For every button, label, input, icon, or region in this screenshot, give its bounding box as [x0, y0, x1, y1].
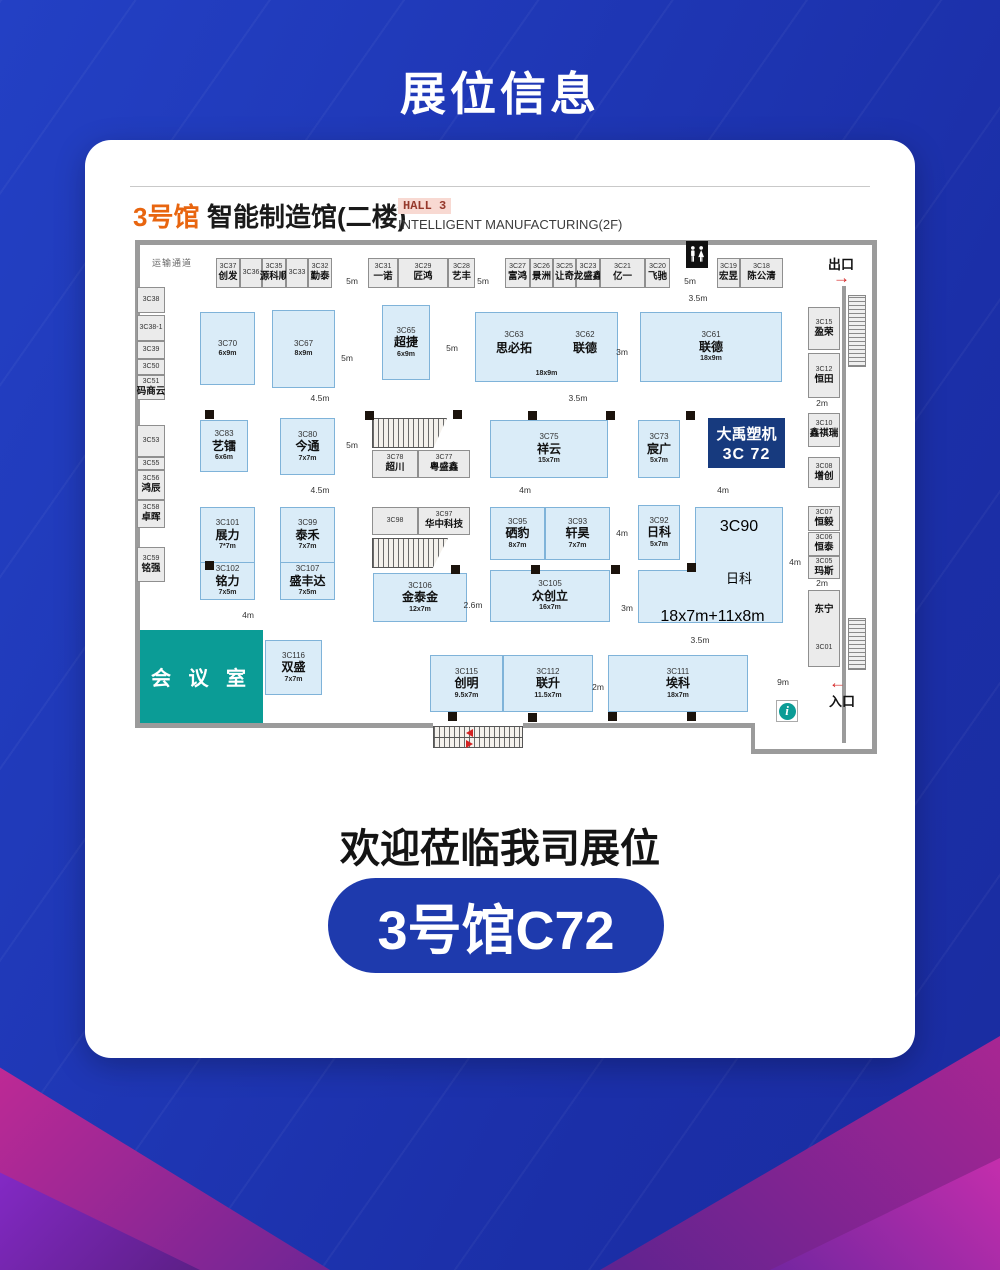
- booth-3c65: 3C65超捷6x9m: [382, 305, 430, 380]
- pillar: [448, 712, 457, 721]
- booth-dims: 7x7m: [569, 542, 587, 550]
- booth-code: 3C78: [387, 454, 404, 462]
- booth-code: 3C32: [312, 263, 329, 271]
- booth-code: 3C55: [143, 460, 160, 468]
- booth-code: 3C51: [143, 378, 160, 386]
- booth-3c50: 3C50: [137, 359, 165, 375]
- measure-label: 4m: [789, 557, 801, 567]
- booth-code: 3C31: [375, 263, 392, 271]
- booth-code: 3C107: [296, 565, 320, 574]
- booth-name: 恒泰: [814, 543, 833, 553]
- pillar: [205, 410, 214, 419]
- booth-3c59: 3C59铭强: [137, 547, 165, 582]
- booth-3c55: 3C55: [137, 457, 165, 470]
- booth-3c15: 3C15盈荣: [808, 307, 840, 350]
- booth-code: 3C56: [143, 475, 160, 483]
- booth-name: 一诺: [373, 272, 392, 282]
- booth-code: 3C77: [436, 454, 453, 462]
- booth-name: 盛丰达: [289, 575, 325, 588]
- measure-label: 3m: [621, 603, 633, 613]
- booth-name: 恒毅: [814, 518, 833, 528]
- stairs-icon: [372, 418, 447, 448]
- booth-dims: 5x7m: [650, 457, 668, 465]
- pillar: [686, 411, 695, 420]
- stairs-icon: [372, 538, 448, 568]
- booth-code: 3C33: [289, 269, 306, 277]
- measure-label: 5m: [684, 276, 696, 286]
- booth-3c19: 3C19宏昱: [717, 258, 740, 288]
- booth-3c53: 3C53: [137, 425, 165, 457]
- booth-name: 祥云: [537, 443, 561, 456]
- booth-name: 轩昊: [565, 527, 589, 540]
- booth-name: 东宁: [814, 605, 833, 615]
- booth-3c27: 3C27富鸿: [505, 258, 530, 288]
- booth-code: 3C105: [538, 580, 562, 589]
- booth-name: 泰禾: [295, 529, 319, 542]
- booth-cta-text: 3号馆C72: [377, 886, 614, 965]
- header-divider: [130, 186, 870, 187]
- booth-code: 3C08: [816, 463, 833, 471]
- measure-label: 5m: [346, 276, 358, 286]
- booth-name: 超捷: [394, 336, 418, 349]
- booth-3c77: 3C77粤盛鑫: [418, 450, 470, 478]
- booth-code: 3C53: [143, 437, 160, 445]
- booth-dims: 7x7m: [299, 543, 317, 551]
- booth-name: 玛斯: [814, 567, 833, 577]
- entrance-arrow-icon: ←: [829, 674, 846, 691]
- booth-dims: 15x7m: [538, 457, 560, 465]
- booth-name: 亿一: [613, 272, 632, 282]
- booth-name: 双盛: [281, 661, 305, 674]
- booth-3c35: 3C35源科顺: [262, 258, 286, 288]
- pillar: [531, 565, 540, 574]
- booth-3c51: 3C51码商云: [137, 375, 165, 400]
- booth-name: 增创: [814, 472, 833, 482]
- booth-3c12: 3C12恒田: [808, 353, 840, 398]
- booth-3c105: 3C105众创立16x7m: [490, 570, 610, 622]
- booth-code: 3C102: [216, 565, 240, 574]
- booth-dims: 7*7m: [219, 543, 236, 551]
- measure-label: 3m: [616, 347, 628, 357]
- booth-dims: 7x7m: [285, 676, 303, 684]
- booth-name: 日科: [695, 568, 783, 587]
- booth-code: 3C61: [701, 331, 720, 340]
- pillar: [687, 563, 696, 572]
- booth-3c20: 3C20飞驰: [645, 258, 670, 288]
- measure-label: 9m: [777, 677, 789, 687]
- booth-dims: 8x9m: [295, 350, 313, 358]
- booth-name: 粤盛鑫: [430, 463, 459, 473]
- booth-3c29: 3C29匠鸿: [398, 258, 448, 288]
- wall-top: [135, 240, 877, 245]
- booth-name: 思必拓: [496, 342, 532, 355]
- booth-3c26: 3C26景洲: [530, 258, 553, 288]
- pillar: [365, 411, 374, 420]
- booth-3c37: 3C37创发: [216, 258, 240, 288]
- booth-code: 3C23: [580, 263, 597, 271]
- booth-dims: 18x9m: [476, 370, 617, 378]
- booth-3c63: 3C63思必拓: [496, 331, 532, 355]
- booth-code: 3C25: [556, 263, 573, 271]
- booth-name: 陈公清: [747, 272, 776, 282]
- booth-name: 让奇: [555, 272, 574, 282]
- booth-cta-badge: 3号馆C72: [328, 878, 664, 973]
- booth-3c101: 3C101展力7*7m: [200, 507, 255, 562]
- booth-code: 3C75: [539, 433, 558, 442]
- entrance-label: 入口: [829, 691, 855, 710]
- booth-name: 联德: [699, 341, 723, 354]
- pillar: [205, 561, 214, 570]
- booth-name: 金泰金: [402, 591, 438, 604]
- booth-3c97: 3C97华中科技: [418, 507, 470, 535]
- booth-name: 埃科: [666, 677, 690, 690]
- booth-name: 码商云: [137, 387, 166, 397]
- pillar: [608, 712, 617, 721]
- escalator-center-icon: [433, 726, 523, 748]
- measure-label: 3.5m: [691, 635, 710, 645]
- booth-name: 展力: [215, 529, 239, 542]
- booth-code: 3C19: [720, 263, 737, 271]
- booth-3c93: 3C93轩昊7x7m: [545, 507, 610, 560]
- booth-name: 盈荣: [814, 328, 833, 338]
- measure-label: 4m: [717, 485, 729, 495]
- measure-label: 5m: [346, 440, 358, 450]
- information-glyph: i: [779, 703, 796, 720]
- booth-code: 3C05: [816, 558, 833, 566]
- pillar: [528, 713, 537, 722]
- booth-name: 景洲: [532, 272, 551, 282]
- booth-name: 创明: [454, 677, 478, 690]
- booth-3c39: 3C39: [137, 341, 165, 359]
- booth-name: 恒田: [814, 375, 833, 385]
- booth-3c10: 3C10鑫祺瑞: [808, 413, 840, 447]
- booth-code: 3C15: [816, 319, 833, 327]
- information-icon: i: [776, 700, 798, 722]
- booth-code: 3C38-1: [140, 324, 163, 332]
- booth-3c78: 3C78超川: [372, 450, 418, 478]
- measure-label: 3.5m: [569, 393, 588, 403]
- booth-code: 3C97: [436, 511, 453, 519]
- booth-3c05: 3C05玛斯: [808, 556, 840, 579]
- booth-3c21: 3C21亿一: [600, 258, 645, 288]
- booth-3c83: 3C83艺镭6x6m: [200, 420, 248, 472]
- booth-code: 3C35: [266, 263, 283, 271]
- booth-code: 3C98: [387, 517, 404, 525]
- measure-label: 2m: [816, 578, 828, 588]
- booth-3c115: 3C115创明9.5x7m: [430, 655, 503, 712]
- measure-label: 2m: [816, 398, 828, 408]
- booth-dims: 18x7m+11x8m: [645, 608, 780, 626]
- booth-dims: 7x5m: [299, 589, 317, 597]
- booth-3c72-highlight: 大禹塑机3C 72: [708, 418, 785, 468]
- booth-code: 3C39: [143, 346, 160, 354]
- booth-name: 龙盛鑫: [574, 272, 603, 282]
- escalator-arrow-right: [466, 740, 473, 748]
- escalator-divider: [434, 737, 522, 738]
- meeting-room-label: 会 议 室: [151, 662, 252, 691]
- escalator-arrow-left: [466, 729, 473, 737]
- booth-code: 3C37: [220, 263, 237, 271]
- booth-code: 3C101: [216, 519, 240, 528]
- booth-dims: 9.5x7m: [455, 692, 479, 700]
- booth-name: 鸿辰: [141, 484, 160, 494]
- pillar: [453, 410, 462, 419]
- booth-code: 3C01: [816, 644, 833, 652]
- booth-3c70: 3C706x9m: [200, 312, 255, 385]
- booth-name: 今通: [295, 440, 319, 453]
- booth-name: 源科顺: [260, 272, 289, 282]
- hall-subtitle-en: INTELLIGENT MANUFACTURING(2F): [398, 217, 622, 232]
- booth-code: 3C20: [649, 263, 666, 271]
- booth-name: 宸广: [647, 443, 671, 456]
- booth-code: 3C58: [143, 504, 160, 512]
- hall-number: 3号馆: [133, 197, 199, 234]
- booth-code: 3C59: [143, 555, 160, 563]
- booth-dims: 16x7m: [539, 604, 561, 612]
- measure-label: 3.5m: [689, 293, 708, 303]
- booth-name: 超川: [385, 463, 404, 473]
- booth-name: 大禹塑机: [716, 423, 776, 444]
- booth-code: 3C26: [533, 263, 550, 271]
- booth-3c116: 3C116双盛7x7m: [265, 640, 322, 695]
- meeting-room: 会 议 室: [140, 630, 263, 723]
- booth-code: 3C90: [695, 518, 783, 536]
- wall-bottom-right: [751, 749, 877, 754]
- booth-3c63-3c62: 3C63思必拓 3C62联德 18x9m: [475, 312, 618, 382]
- exit-arrow-icon: →: [833, 269, 850, 286]
- wall-bottom-left: [135, 723, 433, 728]
- measure-label: 4.5m: [311, 485, 330, 495]
- floor-plan: 运输通道 出口 → ← 入口 3C37创发 3C36 3C35源科顺 3C33 …: [135, 240, 877, 754]
- booth-code: 3C21: [614, 263, 631, 271]
- booth-3c31: 3C31一诺: [368, 258, 398, 288]
- booth-3c61: 3C61联德18x9m: [640, 312, 782, 382]
- booth-code: 3C70: [218, 340, 237, 349]
- measure-label: 4m: [519, 485, 531, 495]
- booth-dims: 8x7m: [509, 542, 527, 550]
- booth-dims: 6x9m: [397, 351, 415, 359]
- booth-dims: 7x7m: [299, 455, 317, 463]
- booth-dims: 11.5x7m: [534, 692, 561, 700]
- booth-code: 3C29: [415, 263, 432, 271]
- booth-code: 3C28: [453, 263, 470, 271]
- booth-name: 飞驰: [648, 272, 667, 282]
- pillar: [451, 565, 460, 574]
- booth-code: 3C67: [294, 340, 313, 349]
- booth-name: 匠鸿: [413, 272, 432, 282]
- wall-bottom-mid: [523, 723, 755, 728]
- corridor-label: 运输通道: [152, 256, 192, 269]
- booth-name: 创发: [218, 272, 237, 282]
- welcome-text: 欢迎莅临我司展位: [0, 816, 1000, 874]
- poster: 展位信息 3号馆 智能制造馆(二楼) HALL 3 INTELLIGENT MA…: [0, 0, 1000, 1270]
- escalator-bottom-icon: [848, 618, 866, 670]
- booth-name: 华中科技: [425, 520, 463, 530]
- booth-3c67: 3C678x9m: [272, 310, 335, 388]
- booth-3c07: 3C07恒毅: [808, 506, 840, 531]
- pillar: [687, 712, 696, 721]
- booth-3c112: 3C112联升11.5x7m: [503, 655, 593, 712]
- booth-3c95: 3C95硒豹8x7m: [490, 507, 545, 560]
- booth-3c38: 3C38: [137, 287, 165, 313]
- booth-3c28: 3C28艺丰: [448, 258, 475, 288]
- booth-3c36: 3C36: [240, 258, 262, 288]
- booth-name: 艺丰: [452, 272, 471, 282]
- booth-dims: 6x9m: [219, 350, 237, 358]
- booth-code: 3C18: [753, 263, 770, 271]
- booth-3c08: 3C08增创: [808, 457, 840, 488]
- pillar: [611, 565, 620, 574]
- booth-3c106: 3C106金泰金12x7m: [373, 573, 467, 622]
- page-title: 展位信息: [0, 58, 1000, 124]
- booth-3c58: 3C58卓晖: [137, 500, 165, 528]
- booth-code: 3C99: [298, 519, 317, 528]
- booth-name: 众创立: [532, 590, 568, 603]
- booth-code: 3C07: [816, 509, 833, 517]
- booth-3c111: 3C111埃科18x7m: [608, 655, 748, 712]
- booth-name: 艺镭: [212, 440, 236, 453]
- booth-name: 联德: [573, 342, 597, 355]
- booth-name: 硒豹: [505, 527, 529, 540]
- booth-3c73: 3C73宸广5x7m: [638, 420, 680, 478]
- booth-code: 3C 72: [723, 446, 771, 464]
- booth-3c01: 东宁3C01: [808, 590, 840, 667]
- booth-code: 3C06: [816, 534, 833, 542]
- booth-dims: 6x6m: [215, 454, 233, 462]
- booth-dims: 12x7m: [409, 606, 431, 614]
- escalator-top-icon: [848, 295, 866, 367]
- booth-name: 铭强: [141, 564, 160, 574]
- booth-3c75: 3C75祥云15x7m: [490, 420, 608, 478]
- booth-name: 富鸿: [508, 272, 527, 282]
- booth-dims: 18x7m: [667, 692, 689, 700]
- booth-name: 勤泰: [310, 272, 329, 282]
- booth-3c98: 3C98: [372, 507, 418, 535]
- restroom-figures: [687, 244, 707, 266]
- booth-name: 宏昱: [719, 272, 738, 282]
- booth-code: 3C62: [575, 331, 594, 340]
- booth-3c80: 3C80今通7x7m: [280, 418, 335, 475]
- booth-code: 3C12: [816, 366, 833, 374]
- booth-dims: 18x9m: [700, 355, 722, 363]
- booth-name: 联升: [536, 677, 560, 690]
- measure-label: 5m: [341, 353, 353, 363]
- booth-3c32: 3C32勤泰: [308, 258, 332, 288]
- hall-tag-en: HALL 3: [398, 198, 451, 214]
- measure-label: 5m: [477, 276, 489, 286]
- booth-code: 3C10: [816, 420, 833, 428]
- pillar: [606, 411, 615, 420]
- wall-right: [872, 240, 877, 754]
- booth-3c18: 3C18陈公清: [740, 258, 783, 288]
- booth-name: 铭力: [215, 575, 239, 588]
- booth-code: 3C38: [143, 296, 160, 304]
- measure-label: 4m: [616, 528, 628, 538]
- booth-3c99: 3C99泰禾7x7m: [280, 507, 335, 562]
- booth-3c06: 3C06恒泰: [808, 532, 840, 556]
- booth-3c23: 3C23龙盛鑫: [576, 258, 600, 288]
- measure-label: 2m: [592, 682, 604, 692]
- booth-3c62: 3C62联德: [573, 331, 597, 355]
- booth-dims: 7x5m: [219, 589, 237, 597]
- booth-3c33: 3C33: [286, 258, 308, 288]
- booth-code: 3C83: [214, 430, 233, 439]
- booth-code: 3C27: [509, 263, 526, 271]
- booth-name: 卓晖: [141, 513, 160, 523]
- booth-code: 3C73: [649, 433, 668, 442]
- hall-name: 智能制造馆(二楼): [207, 197, 406, 234]
- booth-code: 3C63: [504, 331, 523, 340]
- booth-3c56: 3C56鸿辰: [137, 470, 165, 500]
- booth-code: 3C36: [243, 269, 260, 277]
- pillar: [528, 411, 537, 420]
- measure-label: 4m: [242, 610, 254, 620]
- booth-3c38-1: 3C38-1: [137, 315, 165, 341]
- restroom-icon: [686, 241, 708, 268]
- measure-label: 5m: [446, 343, 458, 353]
- measure-label: 4.5m: [311, 393, 330, 403]
- booth-3c107: 3C107盛丰达7x5m: [280, 562, 335, 600]
- booth-3c25: 3C25让奇: [553, 258, 576, 288]
- booth-name: 鑫祺瑞: [810, 429, 839, 439]
- measure-label: 2.6m: [464, 600, 483, 610]
- booth-code: 3C50: [143, 363, 160, 371]
